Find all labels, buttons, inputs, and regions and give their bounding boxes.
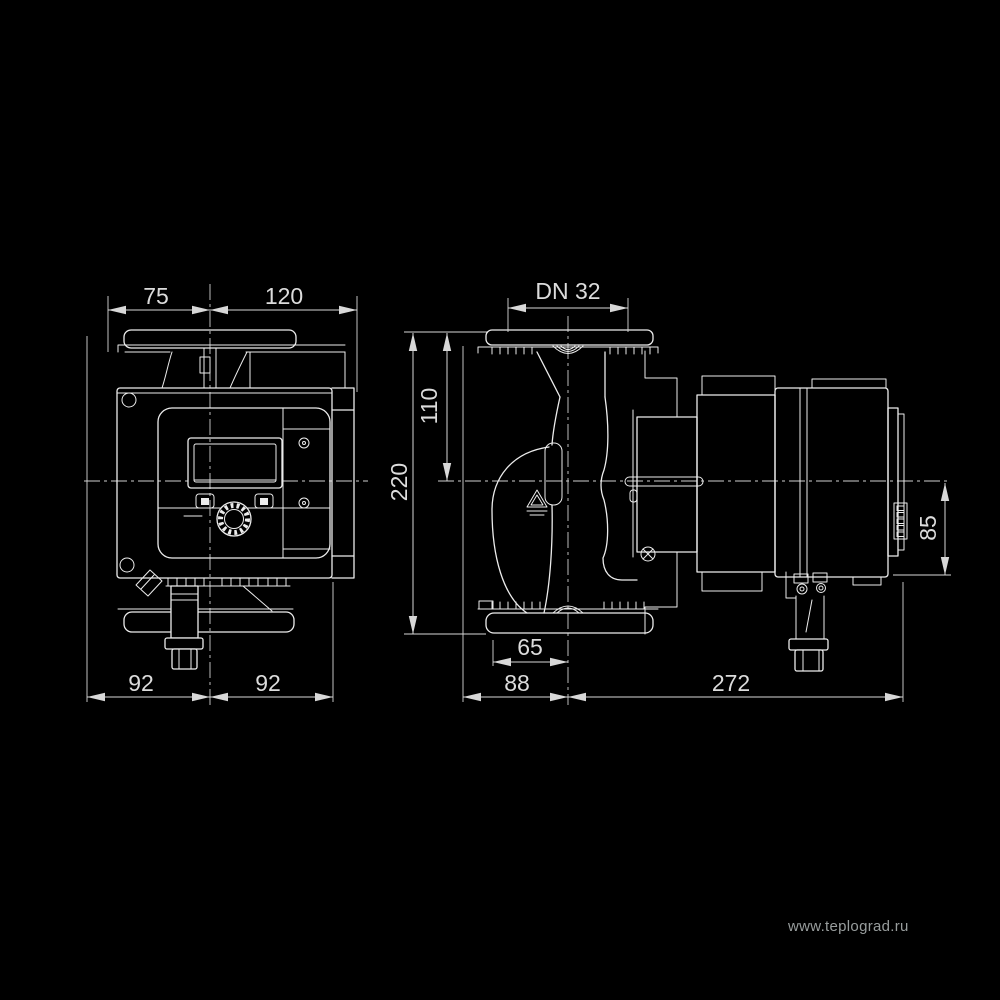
side-neck bbox=[537, 352, 605, 397]
front-lower-shell-ticks bbox=[166, 578, 290, 586]
module-top-lip bbox=[812, 379, 886, 388]
motor-adapter bbox=[637, 417, 697, 552]
display-screen bbox=[194, 444, 276, 482]
terminal-strip bbox=[894, 503, 907, 539]
dim-label-85: 85 bbox=[915, 515, 941, 541]
front-connector-plug bbox=[172, 649, 197, 669]
front-cable-gland-angled bbox=[136, 570, 162, 596]
dimension-labels: 75 120 92 92 DN 32 110 220 65 88 272 85 bbox=[128, 278, 941, 696]
pump-dimensional-drawing: 75 120 92 92 DN 32 110 220 65 88 272 85 bbox=[0, 0, 1000, 1000]
front-neck-latch bbox=[200, 357, 210, 373]
dim-label-88: 88 bbox=[504, 670, 530, 696]
front-neck bbox=[162, 348, 345, 388]
volute-outline bbox=[492, 447, 549, 613]
side-view bbox=[478, 330, 907, 671]
button-right-glyph bbox=[260, 498, 268, 505]
button-left-glyph bbox=[201, 498, 209, 505]
clamp-screw-cross bbox=[643, 549, 653, 559]
side-housing-boss bbox=[545, 443, 562, 505]
side-left-foot bbox=[479, 601, 493, 609]
dim-label-65: 65 bbox=[517, 634, 543, 660]
rear-bracket bbox=[645, 351, 677, 634]
vent-symbol-icon bbox=[527, 490, 547, 515]
side-top-flange bbox=[486, 330, 653, 345]
technical-drawing-page: 75 120 92 92 DN 32 110 220 65 88 272 85 … bbox=[0, 0, 1000, 1000]
stator-housing bbox=[697, 395, 775, 572]
module-screw-lower bbox=[299, 498, 309, 508]
dim-label-272: 272 bbox=[712, 670, 750, 696]
cable-connector bbox=[786, 572, 828, 671]
front-bottom-flange bbox=[124, 612, 294, 632]
dim-label-92-left: 92 bbox=[128, 670, 154, 696]
front-view bbox=[117, 330, 354, 669]
module-seams bbox=[800, 388, 807, 577]
dim-label-92-right: 92 bbox=[255, 670, 281, 696]
stator-top-ridge bbox=[702, 376, 775, 395]
front-connector-nut bbox=[165, 638, 203, 649]
module-screw-upper-dot bbox=[303, 442, 306, 445]
front-right-side-plate bbox=[332, 388, 354, 578]
pump-rear-profile bbox=[601, 397, 637, 580]
dim-label-220: 220 bbox=[386, 463, 412, 501]
front-support-strut bbox=[243, 586, 272, 611]
dim-label-75: 75 bbox=[143, 283, 169, 309]
stator-bottom-ridge bbox=[702, 572, 762, 591]
dim-label-110: 110 bbox=[416, 388, 442, 425]
watermark: www.teplograd.ru bbox=[788, 918, 948, 935]
electronic-module bbox=[775, 388, 888, 577]
front-screw-bottom-left bbox=[120, 558, 134, 572]
control-module bbox=[158, 408, 330, 558]
module-foot bbox=[853, 577, 881, 585]
dim-label-dn32: DN 32 bbox=[535, 278, 600, 304]
module-dividers bbox=[158, 408, 330, 558]
dim-label-120: 120 bbox=[265, 283, 303, 309]
front-screw-top-left bbox=[122, 393, 136, 407]
module-screw-upper bbox=[299, 438, 309, 448]
module-screw-lower-dot bbox=[303, 502, 306, 505]
side-bottom-flange bbox=[486, 613, 653, 633]
